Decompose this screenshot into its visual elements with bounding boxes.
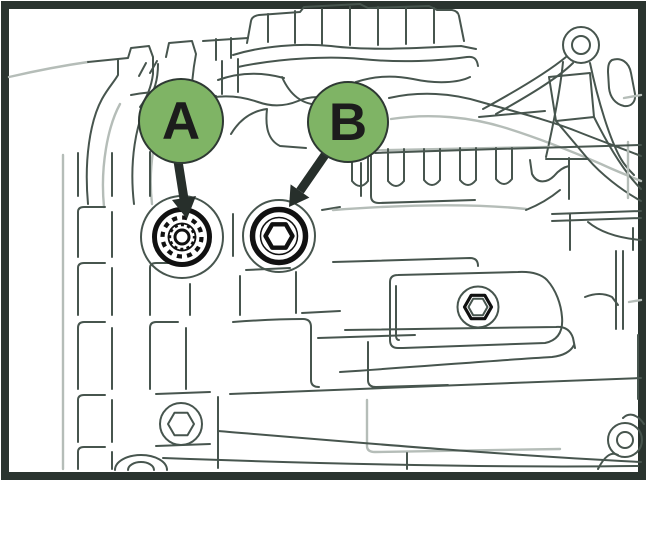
diagram-border-frame (5, 5, 642, 476)
callout-a-arrow (178, 161, 184, 199)
callout-b-label: B (329, 93, 367, 152)
diagram-canvas: A B (0, 0, 651, 553)
gearbox-diagram: A B (0, 0, 651, 553)
callout-a-label: A (162, 92, 200, 151)
